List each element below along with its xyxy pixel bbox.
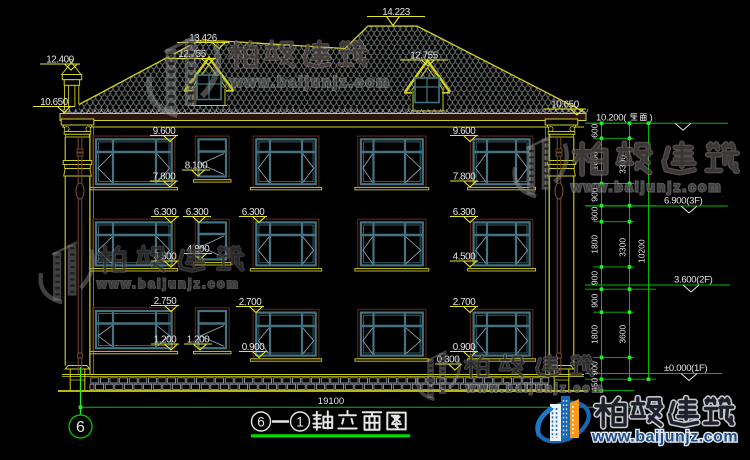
svg-text:2.700: 2.700 xyxy=(239,297,262,308)
svg-text:6: 6 xyxy=(76,419,85,436)
svg-text:19100: 19100 xyxy=(318,396,344,407)
svg-text:1800: 1800 xyxy=(590,325,600,344)
svg-text:0.900: 0.900 xyxy=(453,342,476,353)
svg-text:6.300: 6.300 xyxy=(154,207,177,218)
svg-text:www.baijunjz.com: www.baijunjz.com xyxy=(591,429,738,446)
svg-text:2.750: 2.750 xyxy=(154,296,177,307)
svg-text:9.600: 9.600 xyxy=(453,126,476,137)
svg-text:10.650: 10.650 xyxy=(40,97,69,108)
svg-text:3600: 3600 xyxy=(618,324,628,343)
svg-text:1: 1 xyxy=(296,415,304,430)
svg-text:6: 6 xyxy=(257,415,265,430)
svg-text:10.650: 10.650 xyxy=(551,99,580,110)
svg-text:www.baijunjz.com: www.baijunjz.com xyxy=(465,381,605,395)
svg-text:1.200: 1.200 xyxy=(154,334,177,345)
svg-text:±0.000(1F): ±0.000(1F) xyxy=(664,363,708,374)
svg-text:600: 600 xyxy=(590,206,600,220)
svg-text:900: 900 xyxy=(590,271,600,285)
svg-text:2.700: 2.700 xyxy=(453,297,476,308)
svg-text:9.600: 9.600 xyxy=(153,126,176,137)
svg-text:7.800: 7.800 xyxy=(453,171,476,182)
svg-text:1800: 1800 xyxy=(590,235,600,254)
svg-text:www.baijunjz.com: www.baijunjz.com xyxy=(230,75,391,91)
svg-text:12.400: 12.400 xyxy=(46,54,75,65)
svg-text:www.baijunjz.com: www.baijunjz.com xyxy=(96,277,240,291)
svg-text:3.600(2F): 3.600(2F) xyxy=(674,275,713,286)
svg-text:900: 900 xyxy=(590,293,600,307)
svg-text:7.800: 7.800 xyxy=(153,171,176,182)
svg-text:6.300: 6.300 xyxy=(186,207,209,218)
svg-text:3300: 3300 xyxy=(618,238,628,257)
svg-text:4.500: 4.500 xyxy=(453,251,476,262)
svg-text:6.900(3F): 6.900(3F) xyxy=(664,196,703,207)
svg-text:6.300: 6.300 xyxy=(453,207,476,218)
svg-text:6.300: 6.300 xyxy=(242,207,265,218)
svg-text:600: 600 xyxy=(590,123,600,137)
svg-text:14.223: 14.223 xyxy=(382,7,411,18)
svg-text:1.200: 1.200 xyxy=(187,334,210,345)
svg-text:www.baijunjz.com: www.baijunjz.com xyxy=(570,180,723,195)
svg-text:8.100: 8.100 xyxy=(185,160,208,171)
svg-text:12.755: 12.755 xyxy=(410,50,439,61)
svg-text:10200: 10200 xyxy=(637,239,647,263)
svg-text:0.900: 0.900 xyxy=(242,342,265,353)
